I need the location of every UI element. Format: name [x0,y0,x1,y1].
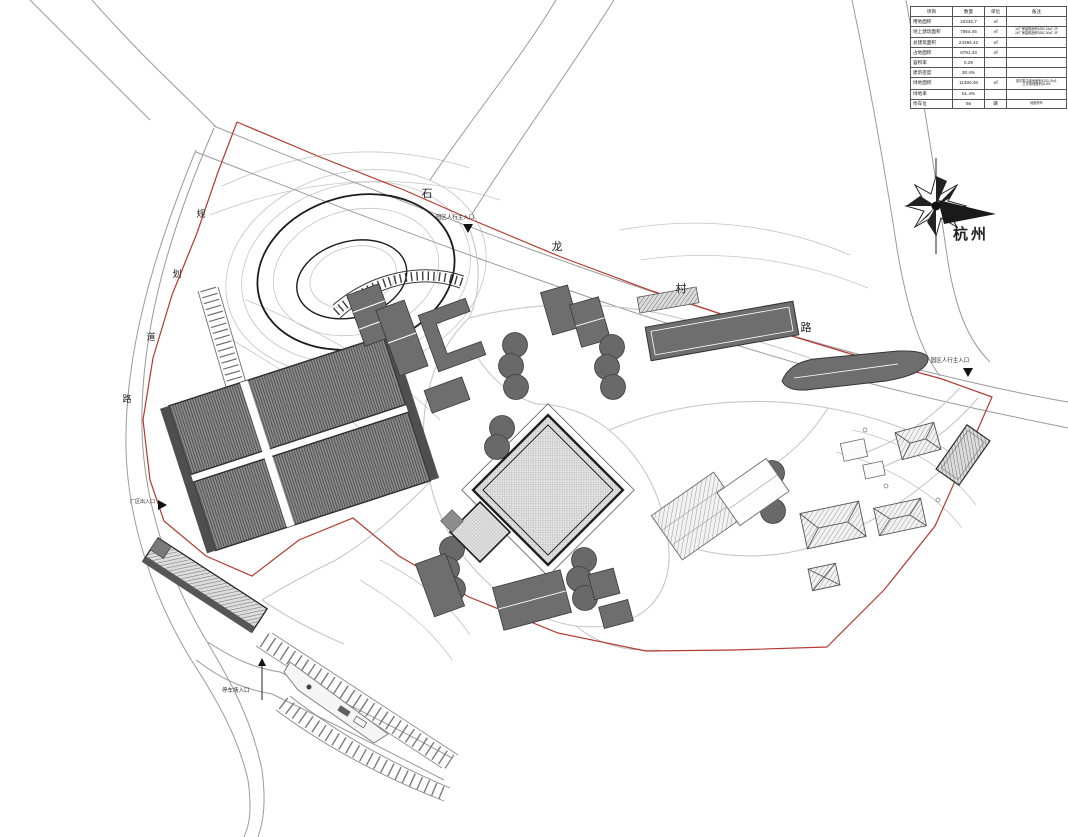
table-row: 地上建筑面积 7564.45 ㎡ 1#厂房建筑面积4282.15㎡, 2F2#厂… [911,26,1067,38]
north-long-slab-building [637,287,928,390]
west-entrance-arrow-icon [158,500,167,510]
table-row: 绿地面积 11480.46 ㎡ 其中集中绿地面积4203.15㎡,占总用地面积1… [911,78,1067,90]
table-row: 绿地率 51.4% [911,89,1067,99]
parking-entrance-arrow-icon [258,658,266,666]
east-entrance-label: 园区人行主入口 [931,356,970,364]
table-row: 停车位 56 辆 地面停车 [911,99,1067,109]
col-header-qty: 数量 [953,7,985,17]
east-entrance-arrow-icon [963,368,973,377]
compass-city-label: 杭州 [953,225,989,243]
col-header-item: 项目 [911,7,953,17]
main-road-char-1: 石 [422,188,433,200]
east-village-buildings [651,422,990,590]
parking-lot [256,633,458,801]
parking-entrance-label: 停车场入口 [222,686,250,694]
site-plan-sheet: 石 龙 村 路 规 划 道 路 园区人行主入口 园区人行主入口 厂区出入口 停车… [0,0,1068,837]
table-row: 建筑密度 30.4% [911,68,1067,78]
col-header-unit: 单位 [985,7,1007,17]
table-row: 占地面积 6791.33 ㎡ [911,48,1067,58]
main-road-char-4: 路 [801,321,812,334]
side-road-char-2: 划 [172,268,181,279]
main-road-char-2: 龙 [552,240,563,253]
site-plan-drawing: 石 龙 村 路 规 划 道 路 园区人行主入口 园区人行主入口 厂区出入口 停车… [0,0,1068,837]
side-road-char-3: 道 [146,331,155,342]
table-row: 总建筑面积 24394.42 ㎡ [911,38,1067,48]
col-header-note: 备注 [1007,7,1067,17]
boat-shaped-canopy [782,351,928,390]
table-header-row: 项目 数量 单位 备注 [911,7,1067,17]
side-road-char-4: 路 [122,393,131,404]
project-data-table: 项目 数量 单位 备注 用地面积 22332.7 ㎡ 地上建筑面积 7564.4… [910,6,1066,109]
side-road-char-1: 规 [196,209,205,219]
southwest-long-building [142,538,267,633]
table-row: 容积率 0.29 [911,58,1067,68]
compass-east-spike [938,200,996,224]
parking-island [284,662,388,743]
south-building-cluster [415,553,633,630]
west-entrance-label: 厂区出入口 [130,498,155,505]
courtyard-building [441,404,635,577]
main-road-char-3: 村 [676,281,687,295]
north-entrance-label: 园区人行主入口 [436,213,475,221]
table-row: 用地面积 22332.7 ㎡ [911,16,1067,26]
